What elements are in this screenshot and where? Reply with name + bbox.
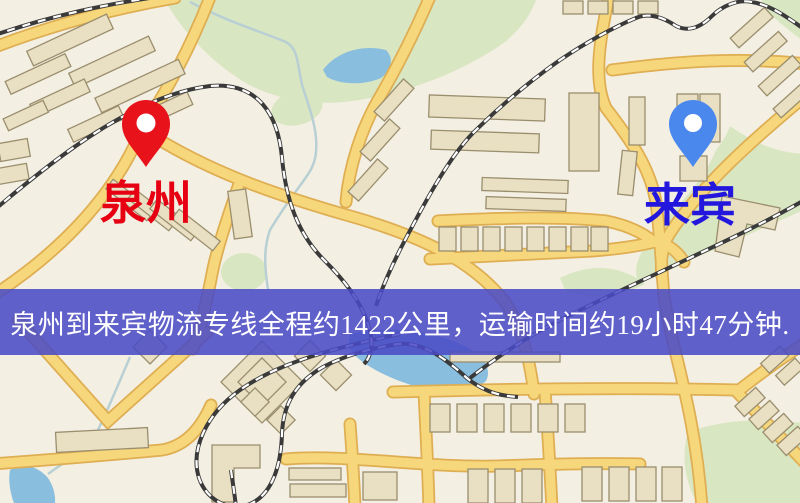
pin-hole bbox=[137, 114, 156, 133]
pin-hole bbox=[684, 114, 702, 132]
destination-label: 来宾 bbox=[644, 180, 736, 231]
map-canvas[interactable]: 泉州 来宾 bbox=[0, 0, 800, 503]
origin-label: 泉州 bbox=[100, 178, 192, 229]
route-info-banner: 泉州到来宾物流专线全程约1422公里，运输时间约19小时47分钟. bbox=[0, 289, 800, 355]
route-info-text: 泉州到来宾物流专线全程约1422公里，运输时间约19小时47分钟. bbox=[10, 303, 789, 342]
logistics-route-map: 泉州 来宾 泉州到来宾物流专线全程约1422公里，运输时间约19小时47分钟. bbox=[0, 0, 800, 503]
